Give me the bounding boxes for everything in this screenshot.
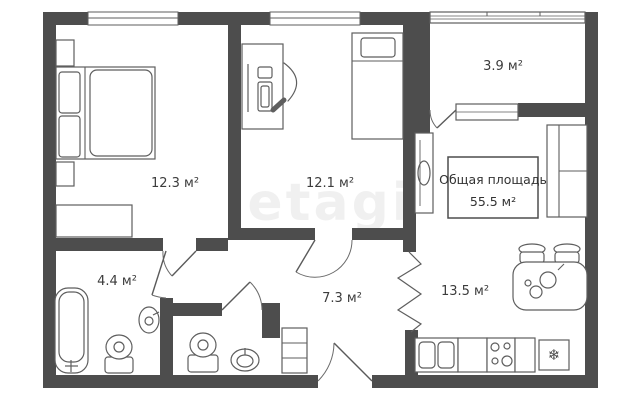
- room-label-hallway: 7.3 м²: [322, 291, 362, 306]
- toilet-bowl-bathroom: [106, 335, 132, 359]
- wall-bedroom2-bottom-left: [241, 228, 315, 240]
- wall-wc-top: [160, 303, 222, 316]
- room-label-balcony: 3.9 м²: [483, 59, 523, 74]
- window-sill-balcony-door: [456, 104, 518, 120]
- wall-wc-right-pier: [262, 303, 280, 338]
- wall-bedroom1-door-pier: [196, 238, 228, 251]
- stove: [487, 338, 515, 372]
- wall-bathroom-top: [43, 238, 163, 251]
- toilet-bowl-wc: [190, 333, 216, 357]
- window-bedroom-1: [88, 12, 178, 25]
- chair-2-seat: [555, 252, 579, 263]
- room-label-kitchen: 13.5 м²: [441, 284, 489, 299]
- sink-unit: [415, 338, 458, 372]
- room-label-bedroom-1: 12.3 м²: [151, 176, 199, 191]
- wall-balcony-bottom: [518, 103, 585, 117]
- room-label-bedroom-2: 12.1 м²: [306, 176, 354, 191]
- wall-outer-bottom-right: [372, 375, 598, 388]
- chair-1-seat: [520, 252, 544, 263]
- nightstand-top: [56, 40, 74, 66]
- room-label-bathroom: 4.4 м²: [97, 274, 137, 289]
- wall-outer-bottom-left: [43, 375, 318, 388]
- window-bedroom-2: [270, 12, 360, 25]
- wall-bedroom2-kitchen: [403, 140, 416, 228]
- total-area-title: Общая площадь: [439, 172, 547, 187]
- pillow-1: [59, 72, 80, 113]
- total-area-box: Общая площадь 55.5 м²: [439, 157, 547, 218]
- dresser: [56, 205, 132, 237]
- total-area-value: 55.5 м²: [470, 194, 516, 209]
- sink-bathroom: [139, 307, 159, 333]
- wall-outer-left: [43, 12, 56, 388]
- counter-cabinet-2: [515, 338, 535, 372]
- floor-plan-canvas: etagi: [0, 0, 640, 400]
- furniture-hallway: [282, 328, 307, 373]
- wall-bedroom2-balcony: [403, 25, 430, 140]
- floor-plan: etagi: [0, 0, 640, 400]
- dining-table: [513, 262, 587, 310]
- nightstand-bottom: [56, 162, 74, 186]
- fridge-snowflake-icon: ❄: [548, 346, 561, 364]
- window-balcony-glazing: [430, 12, 585, 23]
- counter-cabinet-1: [458, 338, 487, 372]
- hallway-wardrobe: [282, 328, 307, 373]
- wall-bedroom1-bedroom2: [228, 25, 241, 240]
- pillow-2: [59, 116, 80, 157]
- wall-hall-kitchen-pier-top: [403, 228, 416, 252]
